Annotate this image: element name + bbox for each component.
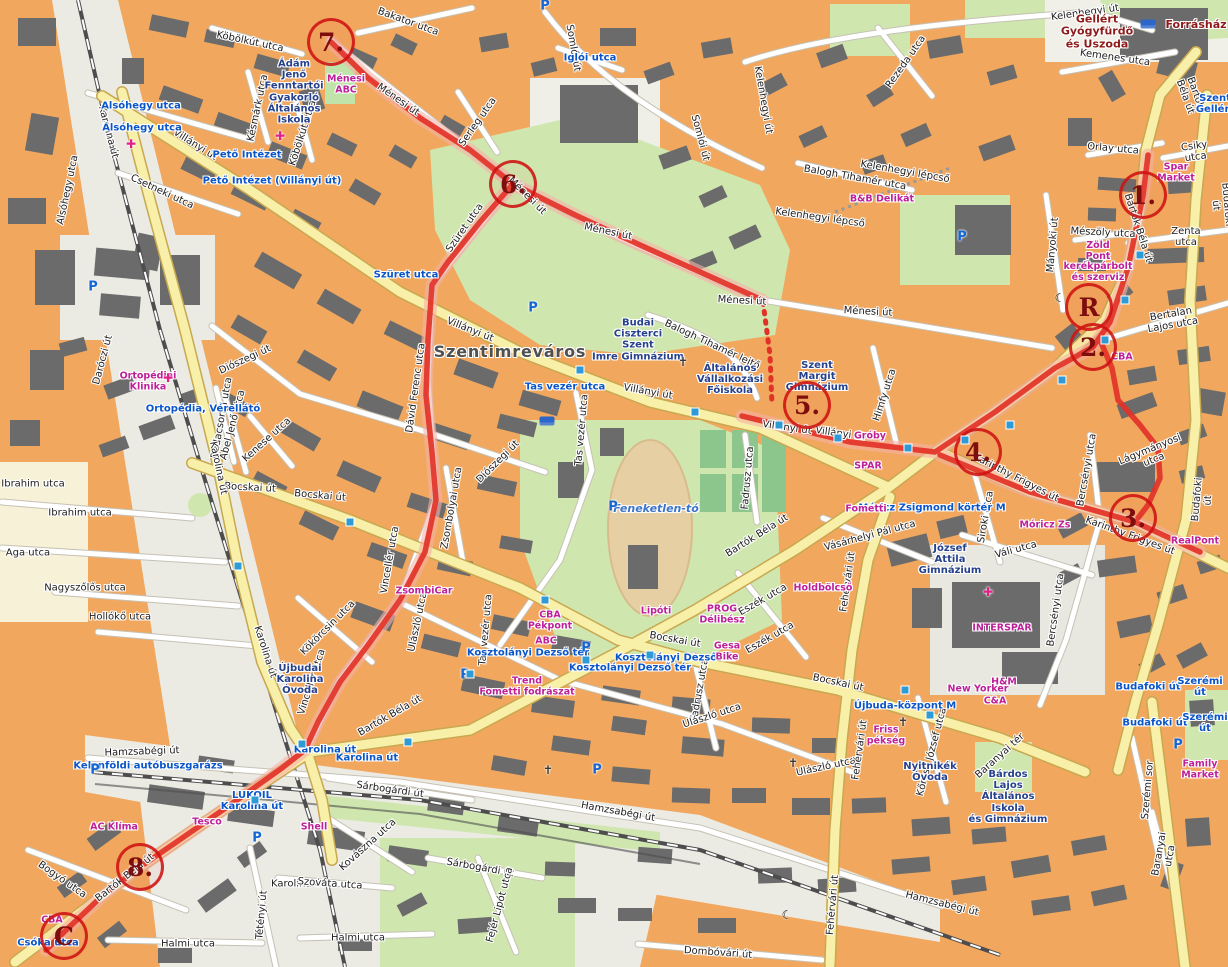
transit-label: Pető Intézet: [212, 149, 281, 160]
street-label: Hamzsabégi út: [580, 800, 656, 824]
transit-stop-icon: [466, 670, 475, 679]
transit-label: Móricz Zsigmond körtér M: [858, 502, 1005, 513]
poi-label: Shell: [301, 823, 328, 834]
street-label: Ménesi út: [717, 294, 766, 308]
street-label: Bogyó utca: [36, 859, 89, 901]
poi-label: C&A: [984, 697, 1007, 708]
street-label: Szerémi sor: [1140, 760, 1156, 820]
street-label: Aga utca: [6, 547, 50, 558]
map-label-layer: SzentimrevárosKelenhegyi útKemenes utcaO…: [0, 0, 1228, 967]
poi-label: SPAR: [854, 462, 882, 473]
street-label: Dombóvári út: [683, 945, 752, 961]
institution-label: Ádám Jenő Fenntartói Gyakorló Általános …: [265, 58, 324, 125]
street-label: Kelenhegyi lépcső: [775, 206, 866, 230]
poi-label: RealPont: [1171, 537, 1219, 548]
church-icon: ✝: [543, 763, 553, 777]
street-label: Somlói út: [688, 114, 711, 163]
parking-icon: P: [1173, 738, 1183, 753]
transit-stop-icon: [1121, 296, 1130, 305]
street-label: Bartók Béla út: [724, 512, 791, 559]
street-label: Kemenes utca: [1079, 48, 1151, 69]
street-label: Bocskai út: [294, 488, 346, 504]
transit-stop-icon: [775, 421, 784, 430]
route-marker-label: 2.: [1080, 335, 1106, 360]
street-label: Zenta utca: [1165, 226, 1207, 248]
route-marker-8: 8.: [116, 843, 164, 891]
street-label: Fadrusz utca: [689, 658, 711, 722]
street-label: Kökörcsin utca: [298, 598, 357, 657]
poi-label: Fometti: [845, 505, 886, 516]
street-label: Vincellér utca: [296, 648, 328, 716]
poi-label: Holdbölcső: [794, 584, 853, 595]
route-marker-3: 3.: [1109, 494, 1157, 542]
transit-label: Budafoki út: [1115, 681, 1180, 692]
transit-stop-icon: [1058, 376, 1067, 385]
street-label: Fehérvári út: [838, 551, 857, 612]
transit-label: Kosztolányi Dezső tér: [569, 662, 691, 673]
street-label: Eszék utca: [744, 620, 796, 657]
monument-icon: ☾: [1055, 291, 1066, 305]
poi-label: Lipóti: [641, 607, 671, 618]
street-label: Eszék utca: [737, 582, 789, 619]
transit-stop-icon: [576, 366, 585, 375]
street-label: Bercsényi utca: [1045, 573, 1066, 648]
transit-label: Kelenföldi autóbuszgarázs: [73, 760, 222, 771]
street-label: Fehérvári út: [825, 874, 841, 935]
street-label: Ménesi út: [843, 305, 892, 319]
poi-label: Tesco: [192, 818, 221, 829]
street-label: Daróczi út: [91, 334, 115, 386]
street-label: Kelenhegyi út: [1050, 3, 1119, 24]
institution-label: Újbudai Karolina Óvoda: [276, 663, 323, 697]
route-marker-7: 7.: [307, 18, 355, 66]
street-label: Rezeda utca: [884, 34, 928, 91]
street-label: Sárbogárdi út: [446, 857, 515, 880]
street-label: Nagyszőlős utca: [44, 582, 126, 593]
poi-label: INTERSPAR: [972, 624, 1031, 635]
street-label: Ibrahim utca: [1, 478, 64, 489]
tourism-label: Gellért Gyógyfürdő és Uszoda: [1061, 14, 1133, 51]
transit-stop-icon: [298, 740, 307, 749]
institution-label: Budai Ciszterci Szent Imre Gimnázium: [592, 318, 684, 363]
route-marker-label: 5.: [794, 393, 820, 418]
transit-stop-icon: [926, 711, 935, 720]
route-marker-2: 2.: [1069, 323, 1117, 371]
transit-stop-icon: [646, 651, 655, 660]
street-label: Bocskai út: [224, 481, 276, 495]
street-label: Bercsényi utca: [1075, 433, 1099, 508]
transit-label: Alsóhegy utca: [101, 100, 181, 111]
parking-icon: P: [88, 280, 98, 295]
church-icon: ✝: [898, 715, 908, 729]
transit-label: Kosztolányi Dezső tér: [615, 652, 737, 663]
street-label: Halmi utca: [161, 938, 215, 949]
street-label: Tas vezér utca: [573, 394, 590, 466]
route-marker-4: 4.: [954, 428, 1002, 476]
street-label: Orlay utca: [1087, 141, 1140, 157]
monument-icon: ☾: [782, 908, 793, 922]
route-marker-label: C: [54, 924, 74, 949]
transit-stop-icon: [234, 562, 243, 571]
street-label: Késmárk utca: [245, 73, 270, 142]
parking-icon: P: [528, 301, 538, 316]
street-label: Dávid Ferenc utca: [404, 342, 428, 433]
poi-label: Friss pékség: [867, 725, 905, 746]
street-label: Diószegi út: [217, 343, 272, 377]
street-label: Kenese utca: [241, 415, 294, 464]
poi-label: CBA Pékpont: [528, 610, 572, 631]
transit-label: Alsóhegy utca: [102, 122, 182, 133]
poi-label: Gesa Bike: [714, 641, 740, 662]
street-label: Karolina út: [271, 878, 325, 889]
route-marker-label: 8.: [127, 855, 153, 880]
street-label: Karolina út: [207, 440, 229, 495]
poi-label: Móricz Zs: [1020, 521, 1071, 532]
street-label: Csetneki utca: [129, 172, 196, 211]
transit-stop-icon: [904, 444, 913, 453]
transit-stop-icon: [691, 408, 700, 417]
street-label: Ménesi út: [583, 221, 633, 242]
street-label: Hollókő utca: [89, 611, 151, 622]
street-label: Vincellér utca: [379, 525, 402, 594]
street-label: Villányi út: [815, 425, 866, 443]
parking-icon: P: [460, 668, 470, 683]
parking-icon: P: [252, 831, 262, 846]
street-label: Csiky utca: [1177, 139, 1213, 166]
poi-label: Trend Fometti fodrászat: [479, 676, 574, 697]
street-label: Bakator utca: [376, 6, 440, 38]
poi-label: Zöld Pont kerékpárbolt és szerviz: [1064, 241, 1133, 284]
street-label: Halmi utca: [331, 932, 385, 943]
church-icon: ✝: [788, 756, 798, 770]
street-label: Lágymányosi utca: [1113, 430, 1192, 479]
parking-icon: P: [608, 500, 618, 515]
poi-label: Family Market: [1181, 759, 1219, 780]
street-label: Bocskai út: [812, 672, 865, 694]
transit-stop-icon: [346, 518, 355, 527]
street-label: Siroki utca: [976, 490, 996, 544]
route-marker-label: R: [1079, 295, 1100, 320]
street-label: Somlói út: [563, 24, 582, 73]
institution-label: Nyitnikék Óvoda: [903, 761, 956, 783]
route-marker-label: 4.: [965, 440, 991, 465]
street-label: Bartók Béla út: [356, 693, 423, 738]
route-marker-label: 7.: [318, 30, 344, 55]
transit-label: Szerémi út: [1177, 676, 1222, 698]
street-label: Hamzsabégi út: [104, 745, 179, 759]
street-label: Tas vezér utca: [477, 594, 494, 666]
street-label: Villányi út: [171, 127, 219, 163]
transit-stop-icon: [901, 686, 910, 695]
hospital-icon: ✚: [983, 585, 993, 599]
poi-label: Ménesi ABC: [327, 74, 365, 95]
street-label: Villányi út: [445, 316, 495, 345]
transit-label: Újbuda-központ M: [854, 700, 956, 711]
street-label: Ménesi út: [375, 81, 421, 118]
street-label: Zsombolyai utca: [439, 466, 464, 550]
transit-label: Pető Intézet (Villányi út): [203, 175, 342, 186]
institution-label: József Attila Gimnázium: [919, 543, 982, 577]
street-label: Alsóhegy utca: [55, 154, 81, 226]
street-label: Fejér Lipót utca: [485, 866, 516, 944]
transit-label: Karolina út: [336, 752, 398, 763]
transit-label: Szent Gellért: [1196, 93, 1228, 115]
street-label: Bartók Béla út: [1173, 73, 1207, 116]
poi-label: H&M: [991, 678, 1017, 689]
institution-label: Bárdos Lajos Általános Iskola és Gimnázi…: [969, 769, 1048, 825]
street-label: Köbölkút utca: [287, 99, 319, 167]
street-label: Karolina út: [251, 625, 278, 680]
transit-label: Karolina út: [294, 744, 356, 755]
street-label: Karolina út: [96, 104, 121, 159]
street-label: Sárbogárdi út: [356, 780, 425, 801]
parking-icon: P: [540, 0, 550, 14]
poi-label: Gróby: [854, 432, 886, 443]
street-label: Vásárhelyi Pál utca: [823, 518, 917, 553]
transit-label: LUKOIL Karolina út: [221, 790, 283, 812]
district-label: Szentimreváros: [434, 343, 586, 361]
street-label: Budafoki út: [1190, 477, 1216, 523]
street-label: Ulászló utca: [406, 591, 430, 653]
street-label: Kőrösy József utca: [915, 706, 949, 797]
poi-label: PROG Délibész: [699, 604, 744, 625]
route-marker-1: 1.: [1119, 171, 1167, 219]
street-label: Budafoki út: [1208, 182, 1228, 228]
street-label: Váli utca: [994, 539, 1038, 561]
street-label: Villányi út: [623, 382, 674, 402]
street-label: Ulászló utca: [681, 701, 742, 730]
street-label: Serleg utca: [457, 95, 499, 148]
transit-label: Iglói utca: [564, 52, 617, 63]
parking-icon: P: [592, 763, 602, 778]
transit-label: Kosztolányi Dezső tér: [467, 647, 589, 658]
street-label: Ulászló utca: [795, 755, 857, 779]
hotel-icon: [540, 417, 555, 426]
transit-stop-icon: [541, 596, 550, 605]
poi-label: ABC: [535, 637, 557, 648]
hotel-icon: [1141, 20, 1156, 29]
street-label: Kovászna utca: [337, 817, 398, 874]
hospital-icon: ✚: [126, 137, 136, 151]
street-label: Bocskai út: [649, 630, 702, 650]
poi-label: ZsombiCar: [395, 587, 452, 598]
transit-stop-icon: [1136, 251, 1145, 260]
street-label: Ábel Jenő utca: [218, 389, 247, 461]
street-label: Szováta utca: [297, 876, 362, 892]
street-label: Hamzsabégi út: [904, 889, 980, 918]
street-label: Kelenhegyi lépcső: [860, 159, 951, 186]
poi-label: AC Klíma: [90, 823, 138, 834]
transit-label: Szerémi út: [1182, 712, 1227, 734]
street-label: Baranyai utca: [1149, 822, 1182, 888]
route-marker-label: 6.: [500, 172, 526, 197]
street-label: Fadrusz utca: [740, 446, 757, 510]
institution-label: Általános Vállalkozási Főiskola: [697, 363, 763, 397]
poi-label: Ortopédiai Klinika: [120, 371, 177, 392]
parking-icon: P: [581, 641, 591, 656]
street-label: Ibrahim utca: [48, 507, 111, 518]
street-label: Szüret utca: [444, 201, 486, 254]
transit-stop-icon: [582, 656, 591, 665]
transit-stop-icon: [251, 796, 260, 805]
street-label: Tétényi út: [254, 890, 269, 940]
street-label: Mányoki út: [1045, 217, 1061, 273]
transit-label: Szüret utca: [374, 269, 439, 280]
hospital-icon: ✚: [163, 371, 173, 385]
street-label: Mészöly utca: [1070, 226, 1136, 241]
poi-label: New Yorker: [948, 685, 1009, 696]
route-marker-label: 1.: [1130, 183, 1156, 208]
water-label: Feneketlen-tó: [613, 503, 699, 515]
street-label: Fehérvári út: [850, 719, 869, 780]
route-marker-5: 5.: [783, 381, 831, 429]
street-label: Balogh Tihamér utca: [803, 163, 907, 192]
street-label: Himfy utca: [871, 367, 898, 422]
route-marker-6: 6.: [489, 160, 537, 208]
street-label: Bertalan Lajos utca: [1142, 304, 1201, 336]
map-canvas[interactable]: SzentimrevárosKelenhegyi útKemenes utcaO…: [0, 0, 1228, 967]
street-label: Köbölkút utca: [215, 29, 284, 54]
transit-label: Budafoki út: [1122, 717, 1187, 728]
transit-label: Ortopédia, Vérellátó: [146, 403, 261, 414]
transit-label: Tas vezér utca: [525, 381, 606, 392]
street-label: Diószegi út: [474, 438, 521, 485]
street-label: Badacsonyi utca: [209, 376, 234, 459]
hospital-icon: ✚: [275, 129, 285, 143]
street-label: Balogh Tihamér lejtő: [663, 318, 762, 372]
transit-stop-icon: [404, 738, 413, 747]
transit-stop-icon: [834, 434, 843, 443]
street-label: Baranyai tér: [973, 731, 1026, 781]
street-label: Kelenhegyi út: [752, 65, 775, 134]
route-marker-C: C: [40, 912, 88, 960]
parking-icon: P: [957, 230, 967, 245]
tourism-label: Forrásház: [1165, 19, 1226, 31]
route-marker-label: 3.: [1120, 506, 1146, 531]
parking-icon: P: [90, 763, 100, 778]
transit-stop-icon: [1006, 421, 1015, 430]
poi-label: B&B Delikát: [850, 195, 914, 206]
church-icon: ✝: [678, 355, 688, 369]
